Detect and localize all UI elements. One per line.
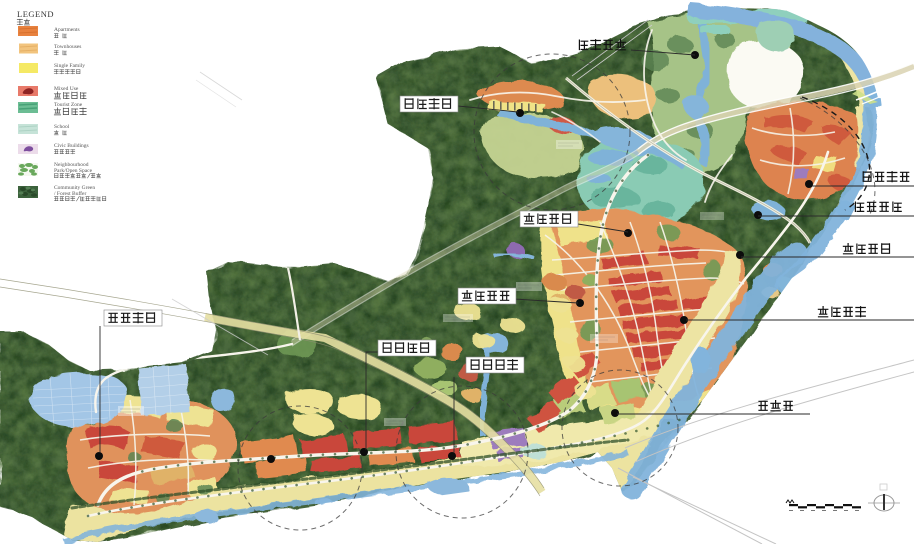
svg-text:School: School [54, 124, 70, 130]
svg-text:Mixed Use: Mixed Use [54, 86, 79, 92]
svg-text:/ Forest Buffer: / Forest Buffer [54, 190, 86, 197]
svg-text:Tourist Zone: Tourist Zone [54, 102, 83, 108]
svg-text:Apartments: Apartments [54, 27, 80, 33]
svg-text:Townhouses: Townhouses [54, 44, 81, 50]
svg-text:Civic Buildings: Civic Buildings [54, 143, 89, 149]
svg-text:Park/Open Space: Park/Open Space [54, 168, 93, 174]
svg-text:Single Family: Single Family [54, 63, 85, 69]
svg-text:LEGEND: LEGEND [17, 9, 54, 19]
